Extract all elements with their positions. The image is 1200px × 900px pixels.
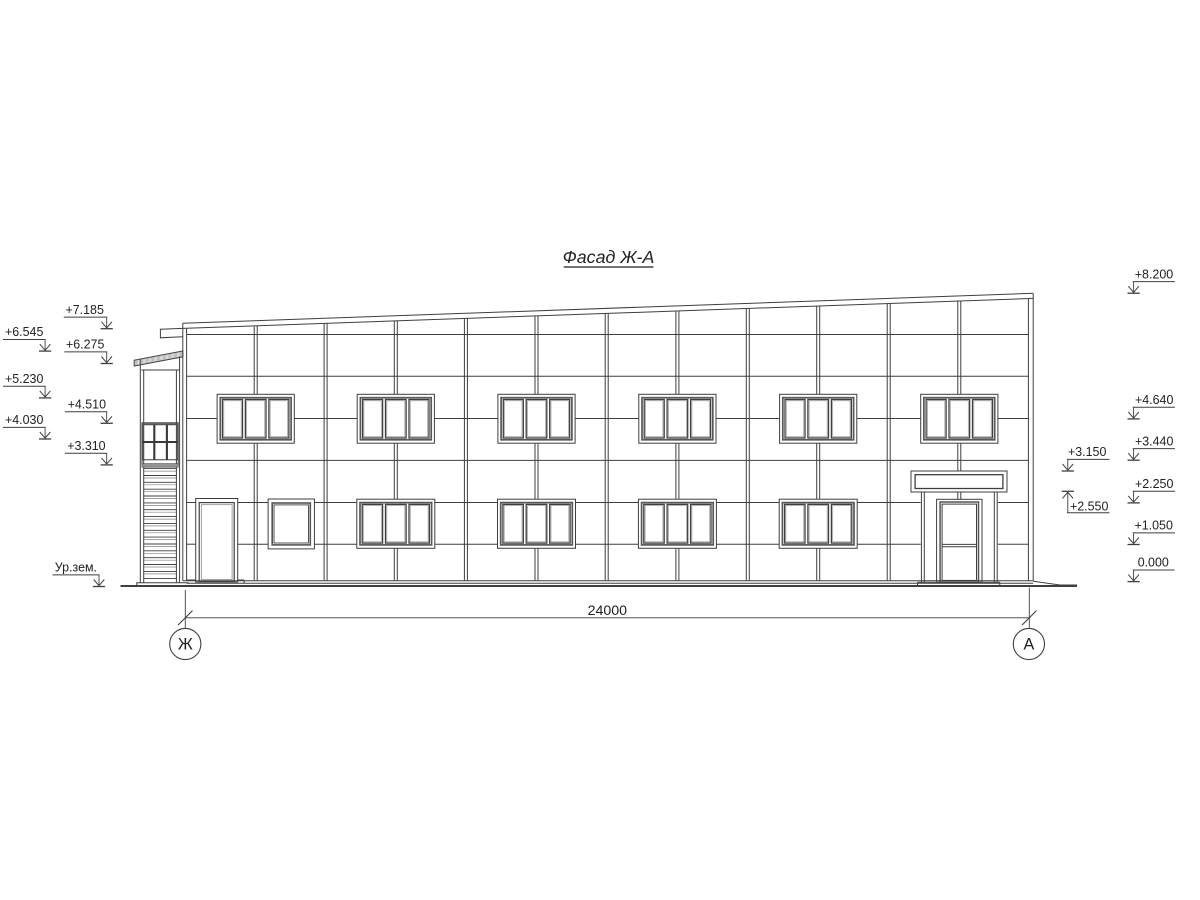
svg-text:Фасад Ж-А: Фасад Ж-А	[563, 247, 655, 267]
svg-text:+2.250: +2.250	[1135, 477, 1173, 491]
svg-text:+6.545: +6.545	[5, 325, 43, 339]
svg-text:+5.230: +5.230	[5, 372, 43, 386]
svg-text:Ур.зем.: Ур.зем.	[55, 561, 97, 575]
svg-text:+4.510: +4.510	[68, 397, 106, 411]
svg-text:+2.550: +2.550	[1070, 499, 1108, 513]
svg-text:+3.150: +3.150	[1068, 445, 1106, 459]
svg-text:0.000: 0.000	[1138, 556, 1169, 570]
svg-text:24000: 24000	[588, 603, 628, 619]
svg-text:+3.440: +3.440	[1135, 434, 1173, 448]
svg-text:+7.185: +7.185	[66, 303, 104, 317]
svg-text:+6.275: +6.275	[66, 338, 104, 352]
svg-text:А: А	[1023, 636, 1034, 654]
svg-text:+1.050: +1.050	[1135, 519, 1173, 533]
svg-text:+3.310: +3.310	[67, 439, 105, 453]
svg-text:Ж: Ж	[178, 636, 193, 654]
svg-text:+4.640: +4.640	[1135, 393, 1173, 407]
svg-text:+4.030: +4.030	[5, 413, 43, 427]
svg-text:+8.200: +8.200	[1135, 267, 1173, 281]
